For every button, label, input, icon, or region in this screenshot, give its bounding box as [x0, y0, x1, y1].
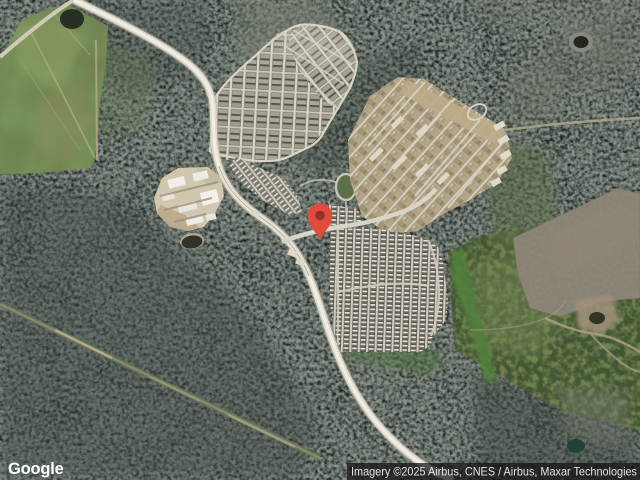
svg-text:Imagery ©2025 Airbus, CNES / A: Imagery ©2025 Airbus, CNES / Airbus, Max… — [351, 465, 637, 479]
svg-text:Google: Google — [8, 460, 64, 478]
